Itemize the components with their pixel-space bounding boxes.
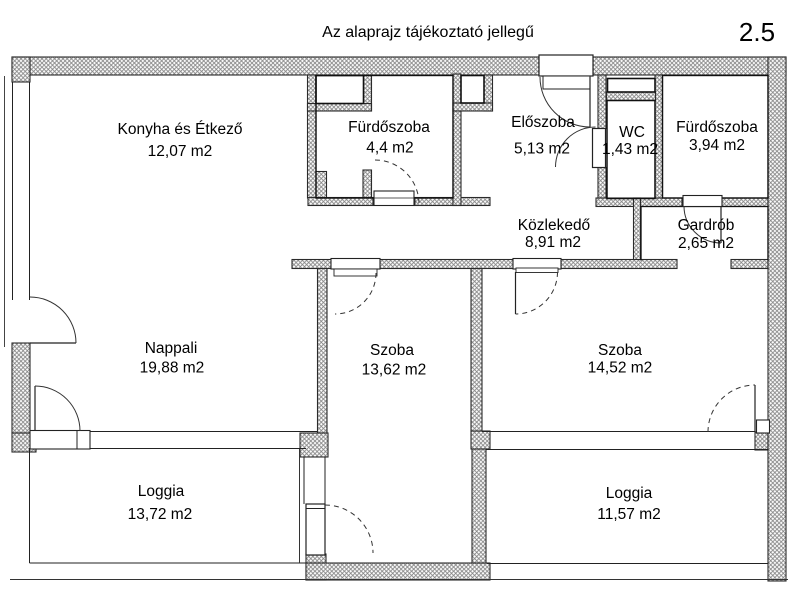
svg-text:3,94 m2: 3,94 m2 bbox=[689, 137, 745, 154]
svg-text:8,91 m2: 8,91 m2 bbox=[525, 234, 581, 251]
svg-text:13,72 m2: 13,72 m2 bbox=[128, 506, 193, 523]
svg-text:12,07 m2: 12,07 m2 bbox=[148, 143, 213, 160]
svg-text:Szoba: Szoba bbox=[370, 342, 414, 359]
svg-text:Loggia: Loggia bbox=[606, 485, 653, 502]
svg-text:Gardrób: Gardrób bbox=[678, 217, 735, 234]
svg-text:2.5: 2.5 bbox=[739, 17, 775, 47]
svg-text:13,62 m2: 13,62 m2 bbox=[362, 362, 427, 379]
svg-text:Előszoba: Előszoba bbox=[511, 114, 575, 131]
svg-text:14,52 m2: 14,52 m2 bbox=[588, 360, 653, 377]
svg-text:5,13 m2: 5,13 m2 bbox=[514, 141, 570, 158]
svg-text:Konyha és Étkező: Konyha és Étkező bbox=[118, 121, 243, 138]
svg-text:Az alaprajz tájékoztató jelleg: Az alaprajz tájékoztató jellegű bbox=[322, 24, 534, 41]
svg-text:Fürdőszoba: Fürdőszoba bbox=[348, 119, 430, 136]
svg-text:11,57 m2: 11,57 m2 bbox=[597, 506, 660, 523]
svg-text:Szoba: Szoba bbox=[598, 342, 642, 359]
svg-text:Loggia: Loggia bbox=[138, 483, 185, 500]
svg-text:2,65 m2: 2,65 m2 bbox=[678, 235, 734, 252]
svg-text:1,43 m2: 1,43 m2 bbox=[602, 141, 658, 158]
svg-text:19,88 m2: 19,88 m2 bbox=[140, 360, 205, 377]
svg-text:WC: WC bbox=[619, 124, 645, 141]
svg-text:Nappali: Nappali bbox=[145, 340, 198, 357]
svg-text:Fürdőszoba: Fürdőszoba bbox=[676, 119, 758, 136]
svg-text:Közlekedő: Közlekedő bbox=[518, 217, 590, 234]
svg-text:4,4 m2: 4,4 m2 bbox=[366, 140, 413, 157]
